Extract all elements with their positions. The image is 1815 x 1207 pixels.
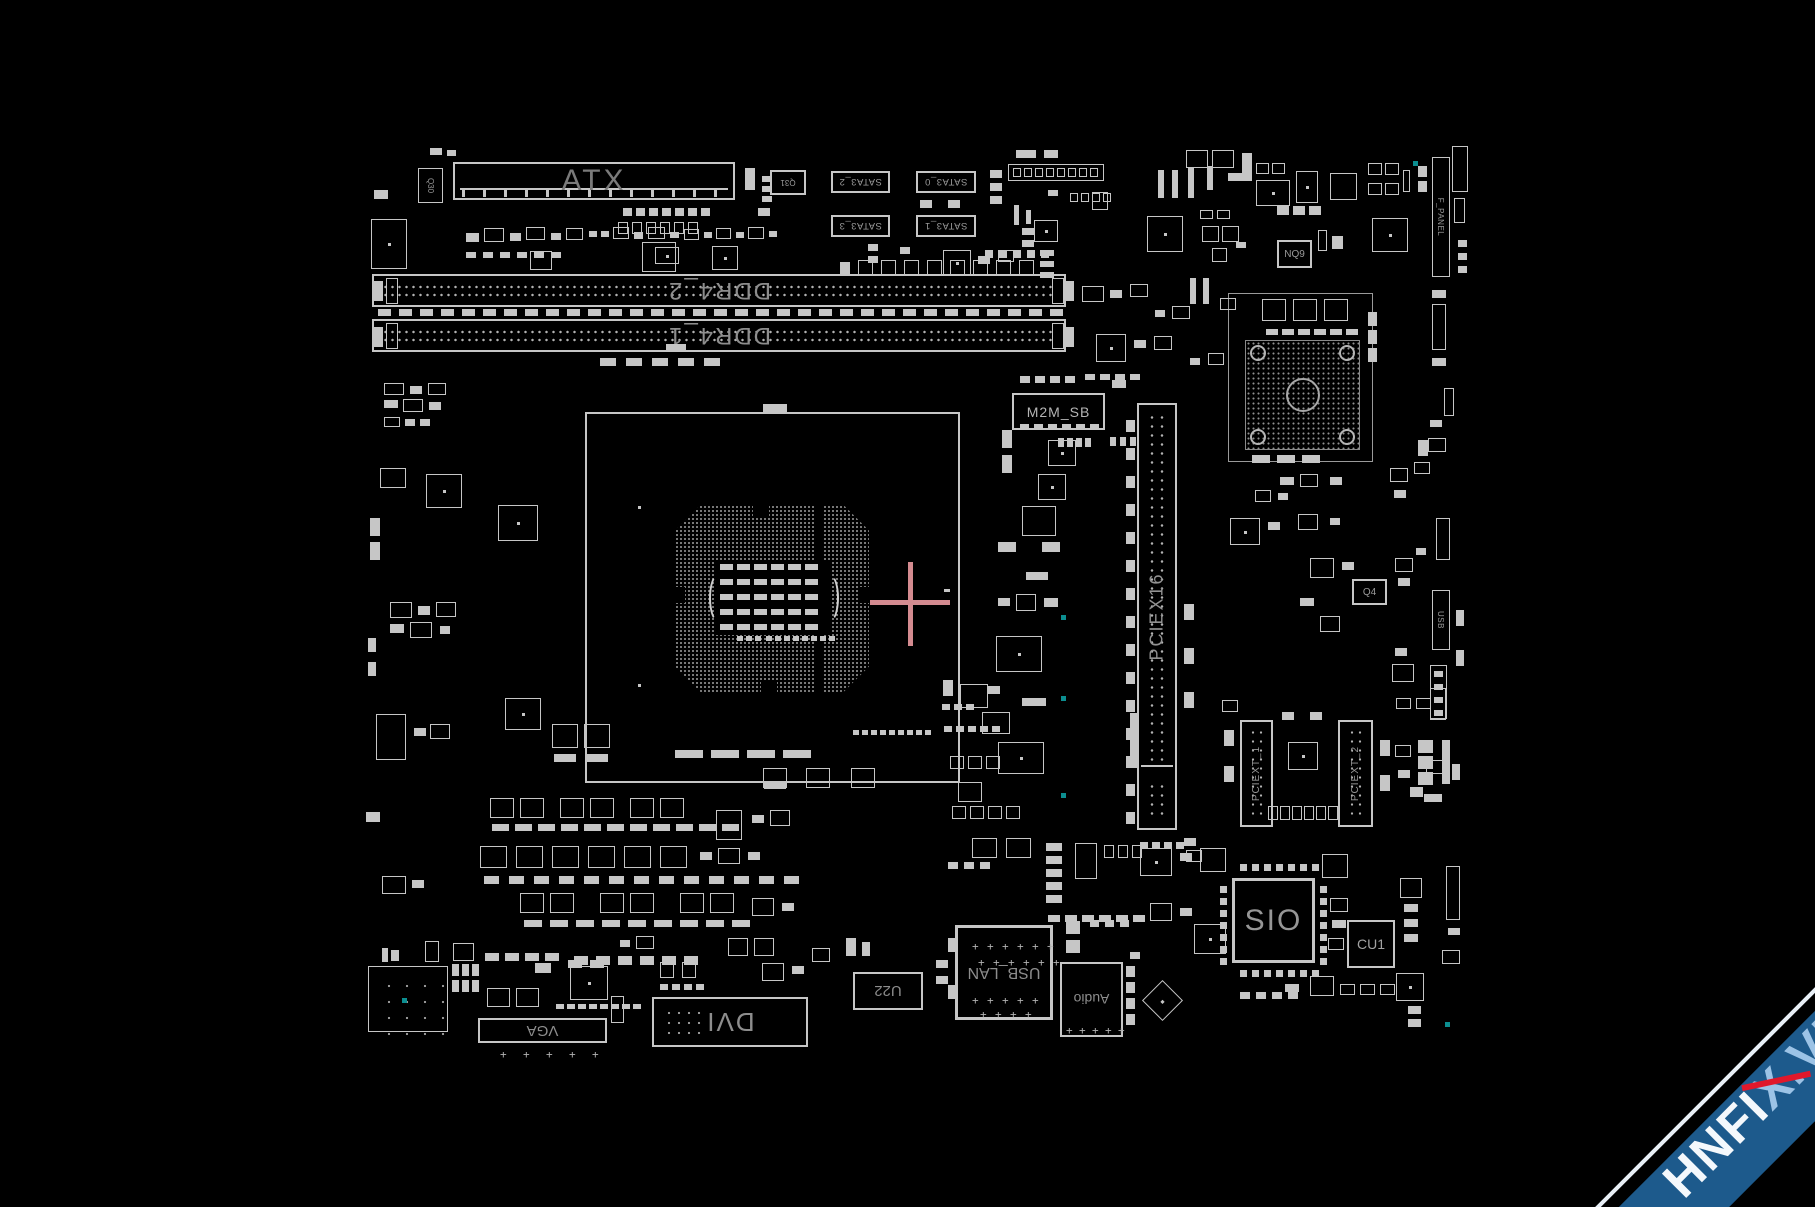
boardview-canvas: ATX Q30 Q31 SATA3_2 SATA3_0 SATA3_3 SATA… xyxy=(0,0,1815,1207)
pad xyxy=(802,636,808,641)
pad xyxy=(1126,672,1135,684)
pad xyxy=(759,876,774,884)
component-shape xyxy=(1200,848,1226,872)
component-shape xyxy=(370,518,380,536)
plus-mark: + xyxy=(993,958,1002,967)
pad xyxy=(696,984,704,990)
pad xyxy=(956,726,964,732)
chip-pin1-dot xyxy=(588,982,591,985)
component-shape xyxy=(1082,286,1104,302)
component-shape xyxy=(620,940,630,947)
pad xyxy=(1090,424,1099,428)
component-shape xyxy=(943,680,953,696)
pad xyxy=(1277,455,1295,463)
pad xyxy=(630,190,633,197)
pad-outline xyxy=(630,893,654,913)
pad xyxy=(907,730,913,735)
pad xyxy=(1252,970,1259,977)
pad-outline xyxy=(646,222,656,234)
pad xyxy=(1368,312,1377,326)
pad xyxy=(1130,437,1136,446)
pad xyxy=(882,309,895,316)
pad xyxy=(903,309,916,316)
pad xyxy=(1020,376,1030,383)
pad xyxy=(788,579,801,585)
component-shape xyxy=(601,231,609,237)
pad xyxy=(525,190,528,197)
pad xyxy=(1368,348,1377,362)
component-shape xyxy=(390,602,412,618)
component-shape xyxy=(1298,514,1318,530)
pad xyxy=(515,824,532,831)
pad xyxy=(720,609,733,615)
pad xyxy=(675,208,684,216)
pad xyxy=(567,309,580,316)
pad xyxy=(483,252,493,258)
component-shape xyxy=(936,960,948,968)
pad xyxy=(737,609,750,615)
component-shape xyxy=(1112,380,1126,388)
pad xyxy=(771,609,784,615)
chip-component xyxy=(1372,218,1408,252)
pad xyxy=(1320,958,1327,965)
component-shape xyxy=(770,810,790,826)
pad xyxy=(754,609,767,615)
component-shape xyxy=(1222,226,1239,242)
pad xyxy=(1067,438,1073,447)
pad xyxy=(1320,910,1327,917)
component-shape xyxy=(1155,310,1165,317)
pad-outline xyxy=(1090,168,1098,177)
pad xyxy=(688,208,697,216)
pad xyxy=(546,309,559,316)
pad xyxy=(980,862,990,869)
pad xyxy=(1408,1006,1421,1014)
pad xyxy=(699,824,716,831)
component-shape xyxy=(1066,940,1080,953)
component-shape xyxy=(1188,168,1194,198)
component-shape xyxy=(1150,903,1172,921)
pad xyxy=(793,636,799,641)
pad xyxy=(1090,920,1099,927)
pad-outline xyxy=(1132,845,1142,858)
chip-component xyxy=(1034,220,1058,242)
pad-outline xyxy=(588,846,615,868)
component-shape xyxy=(1006,838,1031,858)
component-shape xyxy=(384,400,398,408)
pad xyxy=(1040,261,1054,267)
test-point xyxy=(1445,1022,1450,1027)
pad xyxy=(805,624,818,630)
component-shape xyxy=(638,506,641,509)
pad xyxy=(829,636,835,641)
chip-component xyxy=(1230,518,1260,545)
plus-mark: + xyxy=(1017,996,1026,1005)
pad-outline xyxy=(1024,168,1032,177)
pad-outline xyxy=(624,846,651,868)
pad xyxy=(500,252,510,258)
pad xyxy=(754,594,767,600)
pad-outline xyxy=(1360,984,1375,995)
pad xyxy=(964,862,974,869)
component-shape xyxy=(1280,477,1294,485)
pad xyxy=(1408,1019,1421,1027)
component-shape xyxy=(1428,438,1446,452)
pad-outline xyxy=(590,798,614,818)
pad xyxy=(602,920,620,927)
component-shape xyxy=(1395,558,1413,572)
plus-mark: + xyxy=(1002,996,1011,1005)
pad xyxy=(525,953,539,961)
pad xyxy=(1309,206,1321,215)
component-shape xyxy=(1446,866,1460,920)
component-shape xyxy=(1416,548,1426,555)
chip-pin1-dot xyxy=(1209,938,1212,941)
pad-outline xyxy=(516,988,539,1007)
chip-component xyxy=(655,247,679,264)
component-shape xyxy=(453,943,474,961)
pad-outline xyxy=(520,893,544,913)
pad xyxy=(492,824,509,831)
component-shape xyxy=(551,233,561,240)
pad-outline xyxy=(1006,806,1020,819)
pad xyxy=(1020,424,1029,428)
pad-outline xyxy=(1079,168,1087,177)
plus-mark: + xyxy=(995,1010,1004,1019)
pad xyxy=(1256,992,1266,999)
plus-mark: + xyxy=(978,958,987,967)
pad-outline xyxy=(552,846,579,868)
chip-component xyxy=(1038,474,1066,500)
pad-outline xyxy=(1396,698,1411,709)
pad xyxy=(1240,864,1247,871)
pad xyxy=(483,309,496,316)
component-shape xyxy=(410,622,432,638)
pad xyxy=(1126,504,1135,516)
pad xyxy=(1288,864,1295,871)
pad-outline xyxy=(680,893,704,913)
component-shape xyxy=(1272,163,1285,174)
component-shape xyxy=(374,281,383,301)
pad-outline xyxy=(632,222,642,234)
component-shape xyxy=(447,150,456,156)
pad-outline xyxy=(516,846,543,868)
pad xyxy=(462,190,465,197)
chip-component xyxy=(1396,973,1424,1001)
pad xyxy=(588,190,591,197)
chip-pin1-dot xyxy=(1110,347,1113,350)
component-shape xyxy=(414,728,426,736)
pad xyxy=(584,824,601,831)
component-shape xyxy=(1330,173,1357,200)
pad xyxy=(609,309,622,316)
pad xyxy=(1458,240,1467,247)
pad xyxy=(600,358,616,366)
pad-outline xyxy=(904,260,919,276)
component-shape xyxy=(390,624,404,633)
component-shape xyxy=(1207,166,1213,190)
chip-component xyxy=(498,505,538,541)
component-shape xyxy=(1400,878,1422,898)
pad xyxy=(1418,756,1433,769)
chip-pin1-dot xyxy=(1389,234,1392,237)
component-shape xyxy=(452,980,459,992)
pad xyxy=(550,920,568,927)
pad-outline xyxy=(1070,193,1078,202)
pad xyxy=(966,704,974,710)
pad xyxy=(737,579,750,585)
chip-component xyxy=(1256,180,1290,206)
component-shape xyxy=(666,344,686,350)
chip-component xyxy=(570,966,608,1000)
plus-mark: + xyxy=(987,942,996,951)
component-shape xyxy=(1212,150,1234,168)
pad xyxy=(623,208,632,216)
pad-outline xyxy=(1019,260,1034,276)
cursor-crosshair xyxy=(870,600,950,605)
test-point xyxy=(1061,696,1066,701)
pad xyxy=(1404,919,1418,927)
pad-outline xyxy=(996,260,1011,276)
pad xyxy=(990,170,1002,178)
plus-mark: + xyxy=(1092,1026,1101,1035)
pad xyxy=(755,636,761,641)
component-shape xyxy=(391,950,399,961)
pad xyxy=(680,920,698,927)
pad xyxy=(630,309,643,316)
component-shape xyxy=(403,399,423,412)
component-shape xyxy=(1180,853,1192,861)
component-shape xyxy=(1330,898,1348,912)
pad xyxy=(1276,970,1283,977)
pad xyxy=(1434,671,1443,677)
chip-pin1-dot xyxy=(1302,755,1305,758)
component-shape xyxy=(1222,700,1238,712)
pad xyxy=(1050,376,1060,383)
pad xyxy=(871,730,877,735)
component-shape xyxy=(1110,290,1122,298)
pad xyxy=(898,730,904,735)
component-shape xyxy=(1014,205,1019,225)
pad xyxy=(711,750,739,758)
component-shape xyxy=(1180,908,1192,916)
component-shape xyxy=(1418,166,1427,177)
pad xyxy=(754,624,767,630)
component-shape xyxy=(782,903,794,911)
component-shape xyxy=(1092,192,1108,210)
component-shape xyxy=(936,976,948,984)
component-shape xyxy=(462,980,469,992)
component-shape xyxy=(1256,163,1269,174)
pad xyxy=(588,309,601,316)
component-shape xyxy=(420,419,430,426)
component-shape xyxy=(1026,210,1031,224)
pad xyxy=(805,579,818,585)
component-shape xyxy=(1134,340,1146,348)
pad xyxy=(1105,920,1114,927)
chip-component xyxy=(1296,171,1318,203)
pad xyxy=(999,250,1007,258)
pad xyxy=(1302,455,1320,463)
chip-component xyxy=(1096,334,1126,362)
component-shape xyxy=(1066,921,1080,934)
component-shape xyxy=(745,168,755,190)
chip-pin1-dot xyxy=(728,824,731,827)
component-shape xyxy=(1452,764,1460,780)
chip-pin1-dot xyxy=(517,522,520,525)
component-shape xyxy=(1332,236,1343,249)
component-shape xyxy=(1424,794,1442,802)
chip-pin1-dot xyxy=(1409,986,1412,989)
pad-outline xyxy=(1293,299,1317,321)
pad xyxy=(626,358,642,366)
component-shape xyxy=(590,960,604,968)
pad xyxy=(551,252,561,258)
pad xyxy=(1320,886,1327,893)
pad-outline xyxy=(1104,845,1114,858)
pad xyxy=(524,920,542,927)
chip-component xyxy=(505,698,541,730)
chip-pin1-dot xyxy=(1244,531,1247,534)
component-shape xyxy=(1130,713,1137,768)
pad xyxy=(1220,958,1227,965)
pad xyxy=(737,594,750,600)
component-shape xyxy=(430,724,450,739)
component-shape xyxy=(1285,984,1299,992)
component-shape xyxy=(1052,323,1064,349)
component-shape xyxy=(1432,358,1446,366)
component-shape xyxy=(1432,290,1446,298)
pad xyxy=(1029,309,1042,316)
pad-outline xyxy=(1385,183,1399,195)
pad-outline xyxy=(660,222,670,234)
component-shape xyxy=(1342,562,1354,570)
pad xyxy=(1264,864,1271,871)
component-shape xyxy=(484,228,504,242)
pad-outline xyxy=(927,260,942,276)
pad xyxy=(676,824,693,831)
component-shape xyxy=(1065,281,1074,301)
pad xyxy=(441,309,454,316)
pad xyxy=(504,190,507,197)
chip-component xyxy=(1194,924,1226,954)
component-shape xyxy=(436,602,456,617)
pad xyxy=(853,730,859,735)
plus-mark: + xyxy=(1032,996,1041,1005)
pad-outline xyxy=(552,724,578,748)
pad-outline xyxy=(618,222,628,234)
component-shape xyxy=(1330,518,1340,525)
pad xyxy=(1120,437,1126,446)
pad xyxy=(811,636,817,641)
component-shape xyxy=(960,684,988,708)
pad xyxy=(618,956,632,965)
component-shape xyxy=(405,419,415,426)
pad-outline xyxy=(988,806,1002,819)
pad xyxy=(805,594,818,600)
pad xyxy=(633,1004,641,1009)
pad xyxy=(840,309,853,316)
pad-outline xyxy=(1046,168,1054,177)
pad xyxy=(1022,240,1034,247)
component-shape xyxy=(1065,327,1074,347)
pad xyxy=(1013,250,1021,258)
component-shape xyxy=(429,402,441,410)
component-shape xyxy=(1184,648,1194,664)
pad xyxy=(706,920,724,927)
component-shape xyxy=(1328,938,1344,950)
pad xyxy=(762,186,772,192)
pad xyxy=(636,208,645,216)
pad xyxy=(640,956,654,965)
component-shape xyxy=(1432,304,1446,350)
component-shape xyxy=(948,938,956,952)
pad xyxy=(652,358,668,366)
pad xyxy=(1130,374,1140,380)
pad xyxy=(672,309,685,316)
pad xyxy=(1126,784,1135,796)
pad xyxy=(672,190,675,197)
pad xyxy=(924,309,937,316)
chip-component xyxy=(716,810,742,840)
component-shape xyxy=(472,980,479,992)
component-shape xyxy=(374,327,383,347)
pad xyxy=(788,594,801,600)
pad xyxy=(1126,560,1135,572)
plus-mark: + xyxy=(1105,1026,1114,1035)
component-shape xyxy=(1002,430,1012,448)
pad xyxy=(589,1004,597,1009)
pad xyxy=(609,190,612,197)
plus-mark: + xyxy=(1002,942,1011,951)
component-shape xyxy=(1190,358,1200,365)
component-shape xyxy=(636,936,654,949)
pad xyxy=(484,876,499,884)
pad xyxy=(968,726,976,732)
component-shape xyxy=(1418,440,1428,456)
pad xyxy=(714,190,717,197)
pad xyxy=(1046,895,1062,903)
plus-mark: + xyxy=(546,1050,555,1059)
pad xyxy=(1126,588,1135,600)
component-shape xyxy=(1282,712,1294,720)
pad xyxy=(754,579,767,585)
chip-pin1-dot xyxy=(724,257,727,260)
component-shape xyxy=(1220,298,1236,310)
pad xyxy=(693,190,696,197)
chip-pin1-dot xyxy=(1306,186,1309,189)
pad xyxy=(567,190,570,197)
pad-outline xyxy=(682,962,696,978)
pad xyxy=(483,190,486,197)
pad xyxy=(990,183,1002,191)
component-shape xyxy=(1456,610,1464,626)
pad xyxy=(880,730,886,735)
pad-outline xyxy=(1081,193,1089,202)
component-shape xyxy=(1452,146,1468,192)
component-shape xyxy=(1394,490,1406,498)
plus-mark: + xyxy=(1038,958,1047,967)
component-shape xyxy=(1380,740,1390,756)
component-shape xyxy=(752,898,774,916)
component-shape xyxy=(1190,278,1196,304)
component-shape xyxy=(368,662,376,676)
pad xyxy=(720,579,733,585)
plus-mark: + xyxy=(1047,942,1056,951)
pad xyxy=(1115,374,1125,380)
pad xyxy=(737,624,750,630)
plus-mark: + xyxy=(1053,958,1062,967)
